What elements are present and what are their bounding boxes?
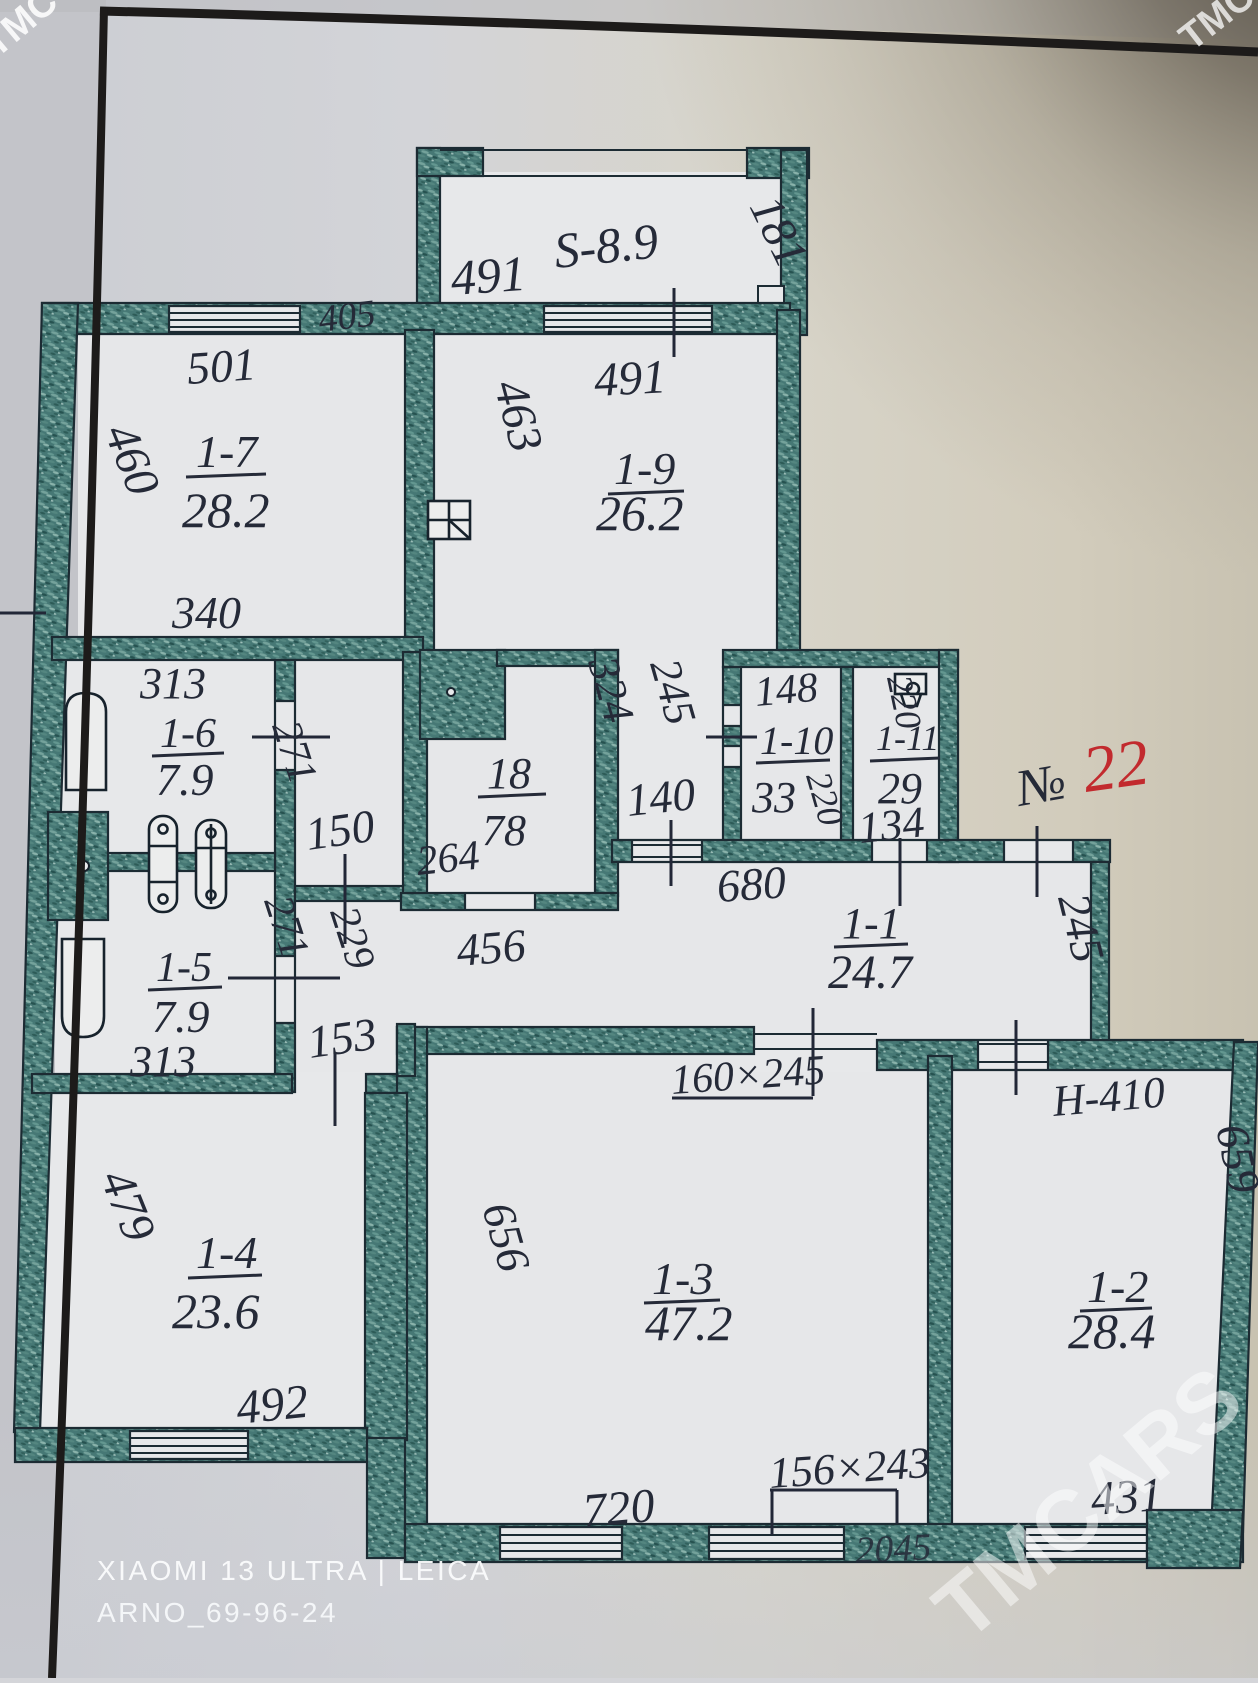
svg-text:492: 492 [234,1375,311,1435]
svg-text:78: 78 [482,806,526,855]
svg-text:ARNO_69-96-24: ARNO_69-96-24 [97,1597,338,1628]
svg-text:18: 18 [487,749,531,798]
svg-text:24.7: 24.7 [828,946,914,999]
svg-text:47.2: 47.2 [645,1295,733,1351]
svg-text:501: 501 [185,338,257,394]
svg-text:313: 313 [129,1037,196,1086]
svg-text:1-6: 1-6 [160,711,216,757]
svg-text:1-4: 1-4 [196,1227,257,1278]
svg-text:720: 720 [580,1479,656,1538]
svg-text:313: 313 [139,659,206,708]
svg-text:7.9: 7.9 [156,754,214,805]
svg-text:1-7: 1-7 [196,426,259,477]
svg-text:7.9: 7.9 [152,991,210,1042]
svg-text:S-8.9: S-8.9 [551,212,660,279]
svg-text:405: 405 [316,292,378,341]
svg-text:22: 22 [1078,725,1154,806]
svg-text:1-1: 1-1 [842,899,901,948]
svg-text:456: 456 [454,919,527,976]
svg-text:H-410: H-410 [1050,1067,1167,1126]
svg-text:23.6: 23.6 [172,1283,260,1339]
svg-text:28.2: 28.2 [182,482,270,538]
svg-text:264: 264 [414,833,481,885]
svg-text:150: 150 [302,800,377,860]
svg-text:340: 340 [171,587,241,638]
svg-text:134: 134 [856,797,927,853]
svg-text:28.4: 28.4 [1068,1303,1156,1359]
svg-text:491: 491 [449,245,528,306]
svg-text:1-10: 1-10 [760,718,833,763]
svg-text:2045: 2045 [854,1526,932,1572]
svg-text:1-5: 1-5 [156,945,212,991]
svg-text:140: 140 [624,768,698,826]
svg-text:491: 491 [593,350,668,407]
svg-text:148: 148 [753,665,820,716]
svg-text:1-11: 1-11 [876,718,939,758]
svg-text:XIAOMI 13 ULTRA | LEICA: XIAOMI 13 ULTRA | LEICA [97,1555,491,1586]
svg-text:33: 33 [751,773,796,822]
svg-text:680: 680 [715,856,787,912]
svg-text:153: 153 [304,1008,379,1068]
svg-text:26.2: 26.2 [596,485,684,541]
